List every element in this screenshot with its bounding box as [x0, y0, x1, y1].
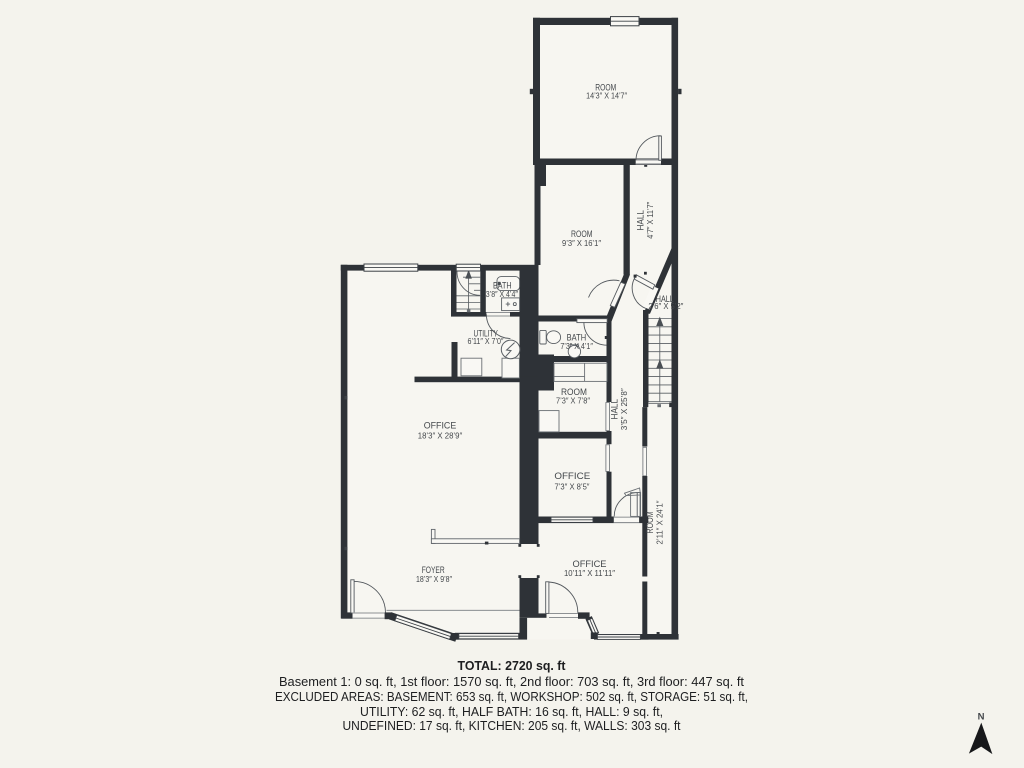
svg-text:18’3″ X 28’9″: 18’3″ X 28’9″ — [418, 431, 463, 440]
svg-text:6’11″ X 7’0″: 6’11″ X 7’0″ — [468, 337, 504, 346]
svg-text:10’11″ X 11’11″: 10’11″ X 11’11″ — [564, 569, 615, 578]
svg-text:7’3″ X 8’5″: 7’3″ X 8’5″ — [555, 482, 590, 491]
svg-text:3’5″ X 25’8″: 3’5″ X 25’8″ — [620, 388, 629, 430]
svg-text:HALL: HALL — [636, 210, 647, 231]
svg-text:N: N — [978, 712, 985, 723]
svg-text:3’8″ X 4’4″: 3’8″ X 4’4″ — [486, 290, 518, 299]
svg-text:9’3″ X 16’1″: 9’3″ X 16’1″ — [562, 239, 601, 248]
svg-text:EXCLUDED AREAS: BASEMENT: 653: EXCLUDED AREAS: BASEMENT: 653 sq. ft, WO… — [275, 689, 748, 704]
svg-text:2’11″ X 24’1″: 2’11″ X 24’1″ — [656, 500, 665, 544]
svg-text:HALL: HALL — [610, 399, 621, 420]
svg-text:UNDEFINED: 17 sq. ft, KITCHEN:: UNDEFINED: 17 sq. ft, KITCHEN: 205 sq. f… — [343, 718, 681, 733]
svg-text:2’6″ X 5’2″: 2’6″ X 5’2″ — [648, 302, 683, 311]
svg-text:4’7″ X 11’7″: 4’7″ X 11’7″ — [646, 202, 655, 239]
svg-text:7’3″ X 7’8″: 7’3″ X 7’8″ — [556, 397, 590, 406]
svg-text:UTILITY: 62 sq. ft, HALF BATH:: UTILITY: 62 sq. ft, HALF BATH: 16 sq. ft… — [360, 704, 663, 719]
svg-text:OFFICE: OFFICE — [554, 471, 590, 482]
svg-text:OFFICE: OFFICE — [424, 421, 457, 432]
svg-text:14’3″ X 14’7″: 14’3″ X 14’7″ — [586, 92, 627, 101]
svg-text:Basement 1: 0 sq. ft, 1st floo: Basement 1: 0 sq. ft, 1st floor: 1570 sq… — [279, 674, 744, 689]
svg-text:7’3″ X 4’1″: 7’3″ X 4’1″ — [560, 342, 593, 351]
svg-text:18’3″ X 9’8″: 18’3″ X 9’8″ — [416, 575, 452, 584]
svg-text:TOTAL: 2720 sq. ft: TOTAL: 2720 sq. ft — [458, 658, 567, 673]
